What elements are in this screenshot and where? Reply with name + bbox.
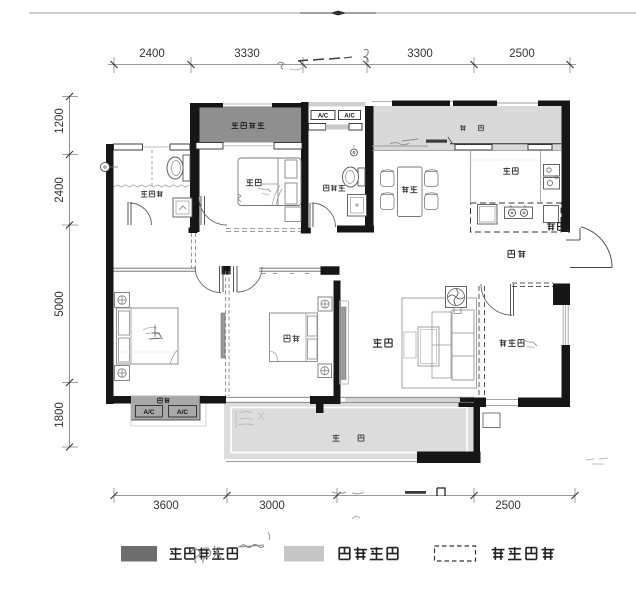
svg-text:A/C: A/C — [177, 409, 189, 416]
svg-text:1800: 1800 — [54, 402, 66, 428]
svg-text:3600: 3600 — [153, 500, 179, 512]
svg-text:3300: 3300 — [407, 48, 433, 60]
svg-text:2500: 2500 — [495, 500, 521, 512]
svg-text:A/C: A/C — [318, 114, 329, 120]
svg-text:3000: 3000 — [259, 500, 285, 512]
svg-text:A/C: A/C — [143, 409, 155, 416]
svg-text:A/C: A/C — [344, 114, 355, 120]
svg-text:2500: 2500 — [509, 48, 535, 60]
svg-text:2400: 2400 — [139, 48, 165, 60]
svg-text:3330: 3330 — [234, 48, 260, 60]
svg-text:2400: 2400 — [54, 177, 66, 203]
svg-text:1200: 1200 — [54, 108, 66, 134]
svg-text:5000: 5000 — [54, 291, 66, 317]
